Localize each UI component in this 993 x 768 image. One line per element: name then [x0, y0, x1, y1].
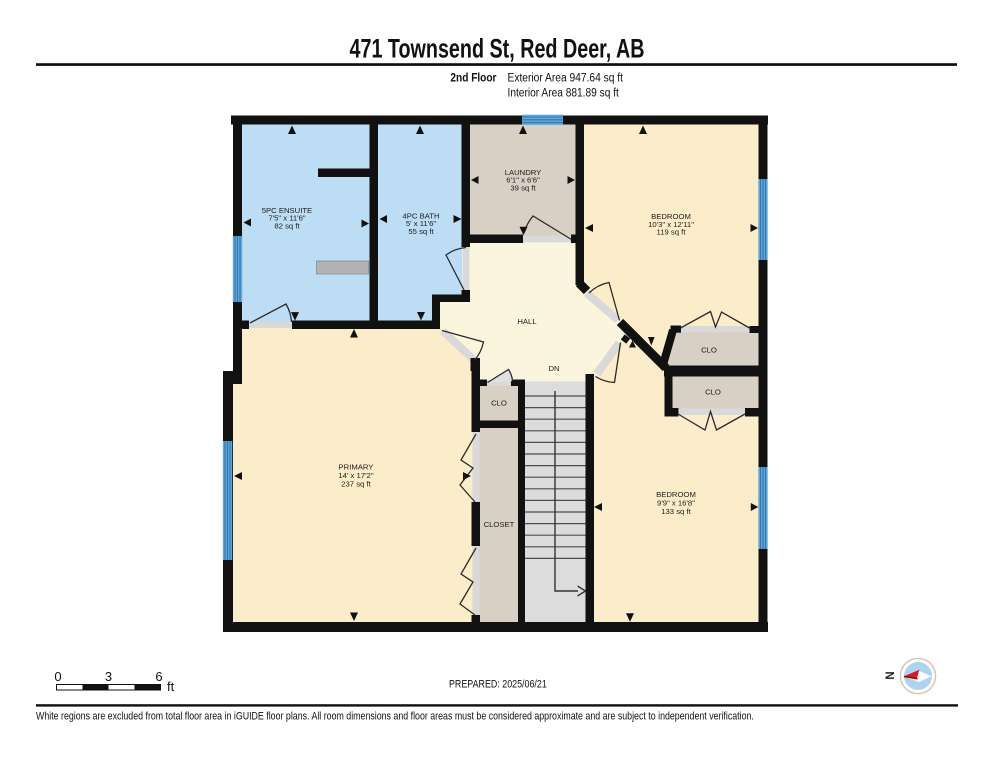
- svg-text:Interior Area 881.89 sq ft: Interior Area 881.89 sq ft: [508, 87, 620, 100]
- svg-text:White regions are excluded fro: White regions are excluded from total fl…: [36, 711, 754, 723]
- svg-text:6: 6: [155, 669, 162, 684]
- svg-text:2nd Floor: 2nd Floor: [450, 72, 497, 85]
- svg-text:0: 0: [54, 669, 61, 684]
- svg-text:ft: ft: [167, 679, 175, 694]
- svg-text:119 sq ft: 119 sq ft: [657, 228, 687, 237]
- svg-text:CLOSET: CLOSET: [484, 520, 515, 529]
- svg-text:55 sq ft: 55 sq ft: [408, 227, 434, 236]
- svg-text:CLO: CLO: [705, 388, 721, 397]
- svg-text:3: 3: [105, 669, 112, 684]
- svg-text:Exterior Area 947.64 sq ft: Exterior Area 947.64 sq ft: [508, 72, 624, 85]
- svg-text:CLO: CLO: [491, 399, 507, 408]
- svg-text:82 sq ft: 82 sq ft: [274, 221, 300, 230]
- svg-text:N: N: [885, 671, 897, 679]
- svg-text:BEDROOM: BEDROOM: [656, 490, 696, 499]
- svg-text:237 sq ft: 237 sq ft: [341, 480, 371, 489]
- svg-text:CLO: CLO: [701, 346, 717, 355]
- svg-text:471 Townsend St, Red Deer, AB: 471 Townsend St, Red Deer, AB: [349, 33, 644, 62]
- svg-text:HALL: HALL: [517, 317, 537, 326]
- svg-text:133 sq ft: 133 sq ft: [661, 507, 691, 516]
- svg-text:PREPARED: 2025/06/21: PREPARED: 2025/06/21: [449, 679, 547, 691]
- svg-text:DN: DN: [548, 364, 559, 373]
- svg-text:39 sq ft: 39 sq ft: [510, 183, 536, 192]
